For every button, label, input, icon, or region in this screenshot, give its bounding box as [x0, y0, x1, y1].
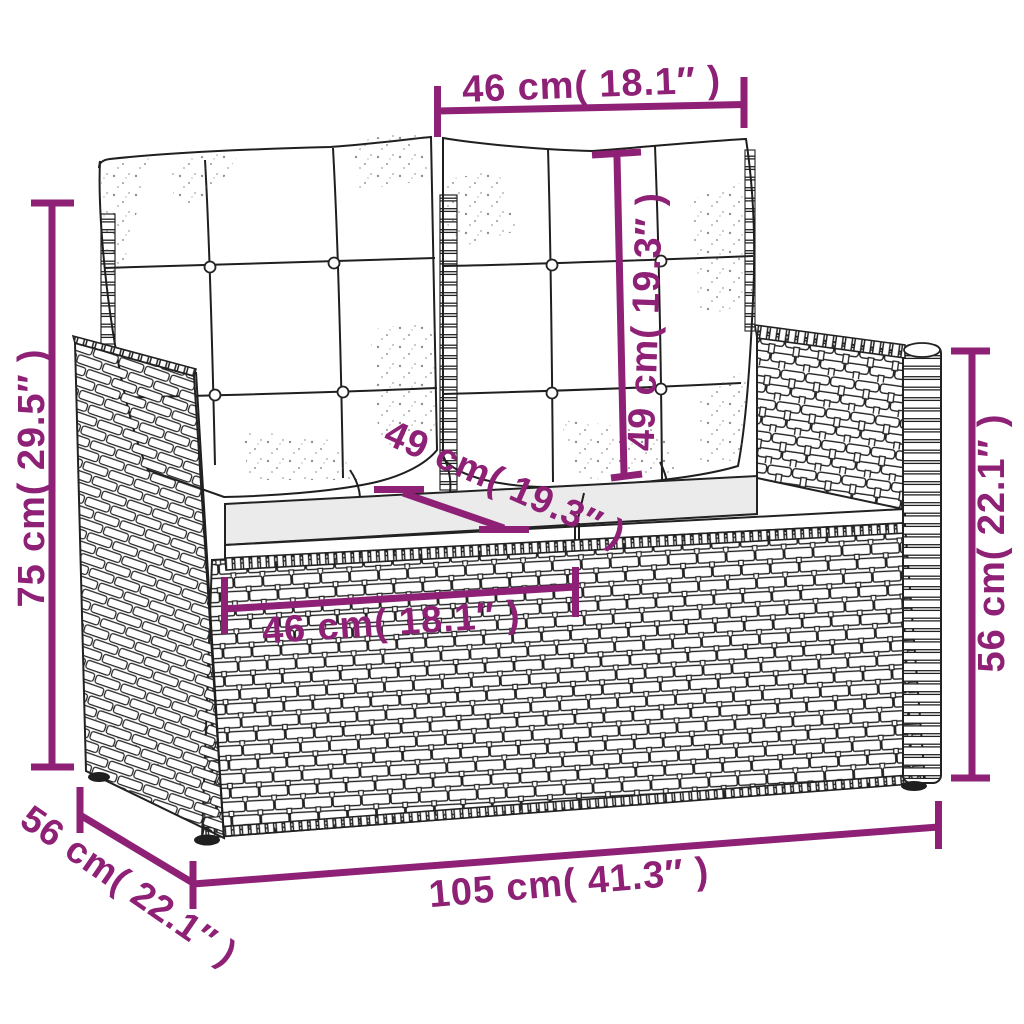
svg-text:75 cm( 29.5″ ): 75 cm( 29.5″ ) — [11, 349, 53, 608]
svg-text:56 cm( 22.1″ ): 56 cm( 22.1″ ) — [971, 414, 1013, 673]
